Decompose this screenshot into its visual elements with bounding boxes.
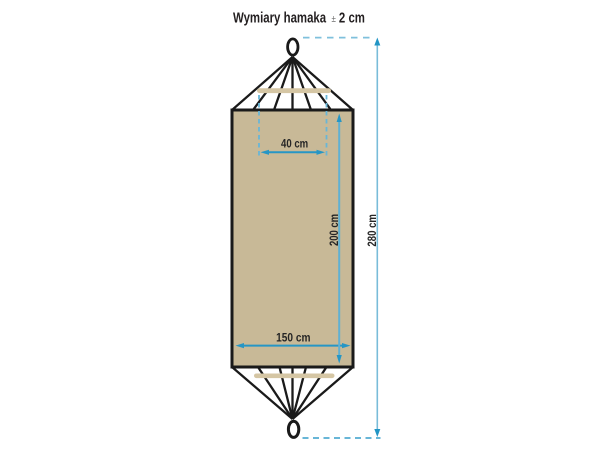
svg-text:280 cm: 280 cm	[366, 214, 379, 247]
svg-text:200 cm: 200 cm	[328, 214, 341, 246]
svg-text:40 cm: 40 cm	[281, 138, 308, 151]
svg-text:Wymiary hamaka±2 cm: Wymiary hamaka±2 cm	[233, 9, 365, 26]
svg-text:150 cm: 150 cm	[276, 332, 310, 345]
